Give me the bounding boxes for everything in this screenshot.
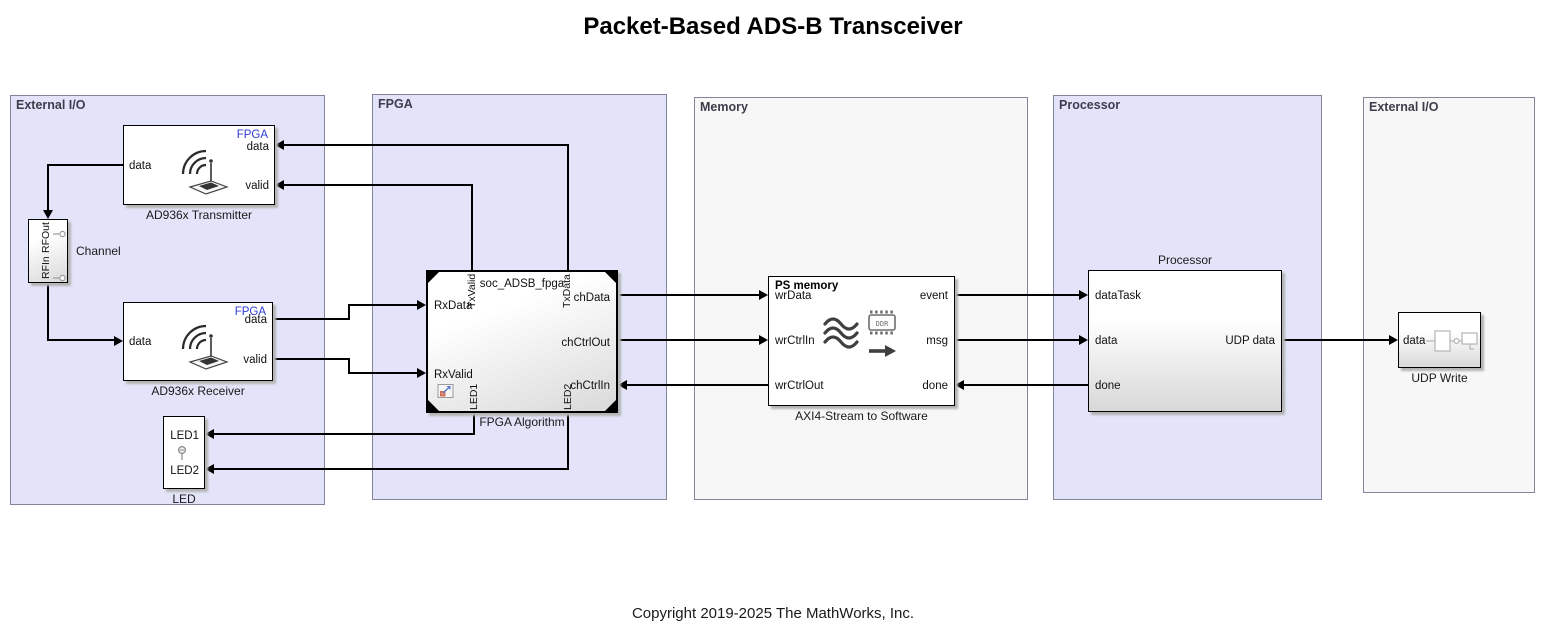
port-label-chctrlin: chCtrlIn — [570, 379, 610, 393]
wire-arrowhead — [955, 380, 964, 390]
block-led[interactable]: LED1 LED2 LED — [163, 416, 205, 489]
led-bulb-icon — [176, 445, 190, 468]
wire-segment[interactable] — [955, 294, 1079, 296]
antenna-icon — [154, 311, 244, 378]
port-label-msg: msg — [926, 334, 948, 348]
wire-segment[interactable] — [627, 384, 768, 386]
wire-segment[interactable] — [47, 339, 114, 341]
block-label: Processor — [1158, 253, 1212, 267]
area-label: FPGA — [378, 97, 413, 111]
block-processor[interactable]: Processor dataTask data done UDP data — [1088, 270, 1282, 412]
wire-segment[interactable] — [273, 318, 350, 320]
port-label-led1: LED1 — [170, 429, 199, 443]
wire-segment[interactable] — [348, 304, 350, 320]
block-label: UDP Write — [1411, 371, 1467, 385]
rf-connector-icon — [53, 269, 67, 287]
wire-segment[interactable] — [955, 339, 1079, 341]
port-label-chdata: chData — [574, 291, 610, 305]
port-label-wrctrlout: wrCtrlOut — [775, 379, 824, 393]
area-label: External I/O — [1369, 100, 1438, 114]
area-label: External I/O — [16, 98, 85, 112]
port-label-valid-out: valid — [243, 353, 267, 367]
port-label-rxdata: RxData — [434, 299, 472, 313]
wire-segment[interactable] — [567, 413, 569, 470]
wire-arrowhead — [114, 336, 123, 346]
block-ad936x-transmitter[interactable]: FPGA data valid data AD936x Transmitter — [123, 125, 275, 205]
area-external-io-right[interactable]: External I/O — [1363, 97, 1535, 493]
wire-segment[interactable] — [1282, 339, 1389, 341]
copyright-text: Copyright 2019-2025 The MathWorks, Inc. — [0, 605, 1546, 622]
wire-segment[interactable] — [214, 433, 475, 435]
wire-segment[interactable] — [473, 413, 475, 435]
wire-arrowhead — [759, 290, 768, 300]
port-label-led2: LED2 — [563, 384, 574, 410]
port-label-rxvalid: RxValid — [434, 368, 473, 382]
block-channel[interactable]: RFOut RFIn Channel — [28, 219, 68, 283]
port-label-rfin: RFIn — [41, 256, 52, 279]
wire-segment[interactable] — [618, 339, 759, 341]
port-label-txdata: TxData — [562, 274, 573, 308]
block-label: FPGA Algorithm — [479, 415, 564, 429]
wire-arrowhead — [275, 140, 284, 150]
port-label-event: event — [920, 289, 948, 303]
wire-arrowhead — [275, 180, 284, 190]
wire-segment[interactable] — [284, 184, 473, 186]
block-axi4-stream-to-software[interactable]: PS memory wrData wrCtrlIn wrCtrlOut even… — [768, 276, 955, 406]
port-label-wrctrlin: wrCtrlIn — [775, 334, 815, 348]
rf-connector-icon — [53, 225, 67, 243]
port-label-data-out: data — [129, 159, 151, 173]
area-label: Memory — [700, 100, 748, 114]
wire-arrowhead — [759, 335, 768, 345]
port-label-data-in: data — [247, 140, 269, 154]
wire-segment[interactable] — [273, 358, 350, 360]
wire-segment[interactable] — [284, 144, 569, 146]
ddr-chip-label: DDR — [876, 320, 889, 328]
port-label-done: done — [922, 379, 948, 393]
wire-segment[interactable] — [348, 304, 417, 306]
wire-segment[interactable] — [964, 384, 1088, 386]
wire-arrowhead — [43, 210, 53, 219]
axi-stream-memory-icon: DDR — [817, 309, 905, 368]
wire-segment[interactable] — [214, 468, 569, 470]
model-name-label: soc_ADSB_fpga — [428, 277, 616, 291]
area-label: Processor — [1059, 98, 1120, 112]
port-label-chctrlout: chCtrlOut — [561, 336, 610, 350]
block-fpga-algorithm[interactable]: soc_ADSB_fpga TxValid TxData RxData RxVa… — [426, 270, 618, 413]
port-label-data: data — [1403, 334, 1425, 348]
port-label-datatask: dataTask — [1095, 289, 1141, 303]
block-ad936x-receiver[interactable]: FPGA data data valid AD936x Receiver — [123, 302, 273, 381]
port-label-valid-in: valid — [245, 179, 269, 193]
model-reference-badge-icon — [437, 383, 455, 404]
wire-arrowhead — [417, 368, 426, 378]
port-label-data: data — [1095, 334, 1117, 348]
block-label: AD936x Transmitter — [146, 208, 252, 222]
wire-segment[interactable] — [47, 283, 49, 341]
port-label-led1: LED1 — [469, 384, 480, 410]
diagram-title: Packet-Based ADS-B Transceiver — [0, 13, 1546, 41]
wire-segment[interactable] — [618, 294, 759, 296]
wire-segment[interactable] — [48, 164, 123, 166]
diagram-canvas: Packet-Based ADS-B Transceiver External … — [0, 0, 1546, 635]
block-label: LED — [172, 492, 195, 506]
model-corner — [603, 398, 618, 413]
port-label-udp-data: UDP data — [1225, 334, 1275, 348]
wire-segment[interactable] — [348, 372, 417, 374]
block-label: Channel — [76, 244, 121, 258]
wire-arrowhead — [205, 429, 214, 439]
wire-arrowhead — [1079, 335, 1088, 345]
wire-arrowhead — [205, 464, 214, 474]
block-udp-write[interactable]: data UDP Write — [1398, 312, 1481, 368]
wire-segment[interactable] — [471, 184, 473, 270]
block-label: AXI4-Stream to Software — [795, 409, 928, 423]
port-label-rfout: RFOut — [41, 222, 52, 253]
subsystem-icon — [1426, 325, 1478, 362]
wire-arrowhead — [1079, 290, 1088, 300]
port-label-data-out: data — [245, 313, 267, 327]
wire-arrowhead — [618, 380, 627, 390]
antenna-icon — [154, 136, 244, 203]
wire-arrowhead — [417, 300, 426, 310]
port-label-data-in: data — [129, 335, 151, 349]
wire-segment[interactable] — [567, 144, 569, 270]
block-label: AD936x Receiver — [151, 384, 244, 398]
wire-arrowhead — [1389, 335, 1398, 345]
port-label-wrdata: wrData — [775, 289, 811, 303]
port-label-done: done — [1095, 379, 1121, 393]
wire-segment[interactable] — [47, 164, 49, 211]
